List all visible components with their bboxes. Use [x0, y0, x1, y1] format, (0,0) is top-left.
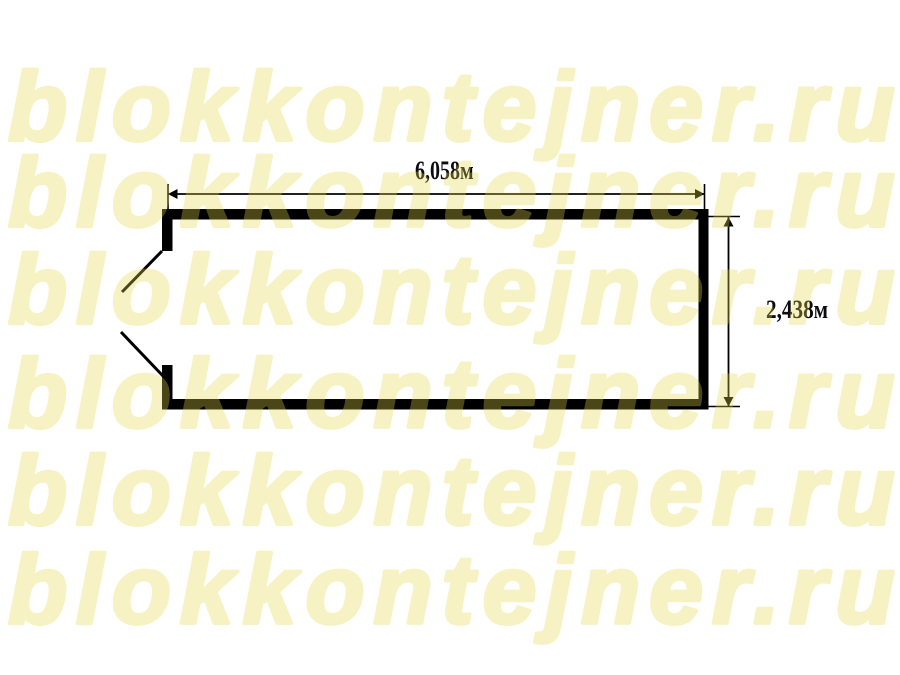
svg-text:blokkontejner.ru: blokkontejner.ru: [8, 235, 900, 344]
svg-text:blokkontejner.ru: blokkontejner.ru: [8, 138, 900, 247]
svg-text:blokkontejner.ru: blokkontejner.ru: [8, 535, 900, 644]
svg-text:blokkontejner.ru: blokkontejner.ru: [8, 339, 900, 448]
svg-text:blokkontejner.ru: blokkontejner.ru: [8, 436, 900, 545]
